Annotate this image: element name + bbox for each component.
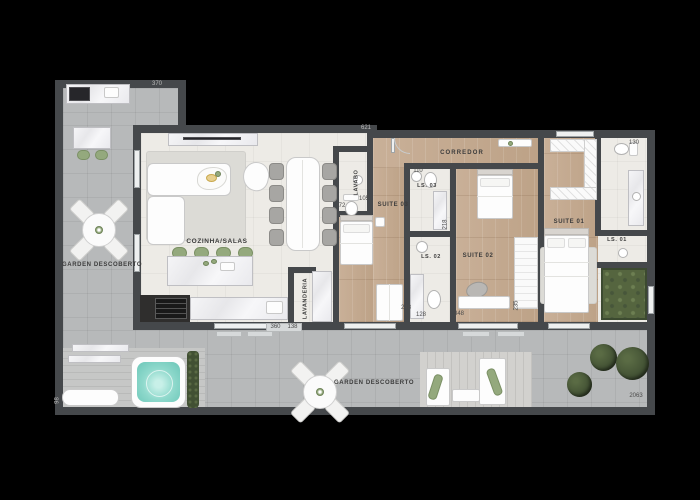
sliding-door bbox=[548, 323, 590, 329]
wall bbox=[595, 262, 647, 268]
terrace-bench bbox=[72, 344, 129, 352]
dining-chair bbox=[322, 185, 337, 202]
table-seam bbox=[302, 160, 303, 248]
shower-head bbox=[618, 248, 628, 258]
pillow bbox=[480, 178, 510, 187]
kitchen-sink bbox=[266, 301, 283, 314]
room-label-garden-bottom: GARDEN DESCOBERTO bbox=[334, 379, 414, 388]
dimension-terrace-left: 98 bbox=[55, 391, 62, 411]
floor-plan: GARDEN DESCOBERTO GARDEN DESCOBERTO COZI… bbox=[0, 0, 700, 500]
blanket-seam bbox=[477, 196, 513, 197]
toilet bbox=[427, 290, 441, 309]
kitchen-island bbox=[167, 256, 253, 286]
dimension-bath02-a: 248 bbox=[397, 305, 415, 312]
dimension-bbq-wall: 370 bbox=[146, 81, 168, 88]
dimension-suite03-side: 105 bbox=[355, 196, 373, 203]
plant bbox=[215, 171, 221, 177]
dimension-terrace-bottom-right: 2063 bbox=[621, 393, 651, 400]
dining-chair bbox=[269, 207, 284, 224]
blanket-seam bbox=[544, 262, 589, 263]
washbasin bbox=[632, 192, 641, 201]
jacuzzi-ring bbox=[146, 370, 173, 397]
wall bbox=[288, 267, 294, 322]
dimension-corridor-top: 621 bbox=[355, 125, 377, 132]
island-tray bbox=[220, 262, 235, 271]
dining-chair bbox=[322, 229, 337, 246]
dining-table bbox=[286, 157, 320, 251]
deck-table bbox=[452, 389, 480, 402]
sliding-door bbox=[458, 323, 518, 329]
garden-table-set-left bbox=[71, 202, 127, 258]
room-label-corridor: CORREDOR bbox=[434, 149, 490, 158]
pillow bbox=[547, 238, 565, 248]
door-step bbox=[216, 331, 242, 337]
wall bbox=[647, 130, 655, 415]
dimension-suite02-side: 235 bbox=[514, 296, 521, 316]
door-step bbox=[497, 331, 525, 337]
dimension-bath02-b: 128 bbox=[414, 312, 428, 319]
corridor-console bbox=[498, 139, 532, 147]
dimension-suite02-bottom: 348 bbox=[449, 311, 469, 318]
wall bbox=[55, 80, 63, 415]
window bbox=[556, 131, 594, 137]
dining-chair bbox=[269, 229, 284, 246]
terrace-side-table bbox=[73, 127, 111, 149]
laundry-counter bbox=[312, 271, 332, 322]
room-label-suite02: SUITE 02 bbox=[456, 252, 500, 261]
room-label-bath01: LS. 01 bbox=[603, 236, 631, 245]
bush bbox=[590, 344, 617, 371]
wall bbox=[178, 80, 186, 128]
dining-chair bbox=[269, 163, 284, 180]
plant bbox=[211, 259, 217, 264]
dimension-kitchen-a: 360 bbox=[267, 324, 284, 331]
plant bbox=[203, 261, 209, 266]
dimension-bath03-side: 218 bbox=[443, 215, 450, 235]
room-label-bath02: LS. 02 bbox=[417, 253, 445, 262]
dimension-bath01-top: 130 bbox=[624, 140, 644, 147]
wall bbox=[373, 130, 655, 138]
dimension-kitchen-b: 138 bbox=[285, 324, 300, 331]
terrace-bench bbox=[68, 355, 121, 363]
sliding-door bbox=[214, 323, 274, 329]
door-step bbox=[462, 331, 490, 337]
planter-garden bbox=[601, 268, 647, 320]
sun-lounger bbox=[62, 389, 119, 406]
wall bbox=[450, 163, 456, 322]
wall bbox=[133, 125, 377, 133]
table-centerpiece bbox=[95, 226, 103, 234]
hedge bbox=[187, 351, 199, 408]
pillow bbox=[568, 238, 586, 248]
room-label-laundry: LAVANDERIA bbox=[302, 277, 311, 321]
room-label-kitchen-living: COZINHA/SALAS bbox=[177, 237, 257, 246]
table-centerpiece bbox=[316, 388, 324, 396]
plant bbox=[508, 141, 513, 146]
bbq-grill bbox=[69, 87, 90, 101]
room-label-garden-left: GARDEN DESCOBERTO bbox=[62, 261, 142, 270]
bush bbox=[567, 372, 592, 397]
garden-table-set-bottom bbox=[292, 364, 348, 420]
terrace-stool bbox=[95, 150, 108, 160]
dimension-bath03-top: 110 bbox=[408, 168, 428, 175]
bush bbox=[616, 347, 649, 380]
window bbox=[344, 323, 396, 329]
oven bbox=[155, 298, 187, 319]
dining-chair bbox=[322, 163, 337, 180]
tv bbox=[183, 137, 241, 140]
terrace-stool bbox=[77, 150, 90, 160]
closet bbox=[550, 187, 597, 200]
blanket-seam bbox=[544, 276, 589, 277]
room-label-suite03: SUITE 03 bbox=[371, 201, 415, 210]
washbasin bbox=[416, 241, 428, 253]
desk bbox=[458, 296, 510, 309]
window bbox=[648, 286, 654, 314]
dining-chair bbox=[269, 185, 284, 202]
window bbox=[134, 150, 140, 188]
wardrobe-seam bbox=[389, 284, 390, 321]
bbq-sink bbox=[104, 87, 119, 98]
room-label-bath03: LS. 03 bbox=[413, 182, 441, 191]
pillow bbox=[343, 224, 370, 233]
dimension-powder-door: 72 bbox=[335, 203, 349, 210]
room-label-suite01: SUITE 01 bbox=[547, 218, 591, 227]
nightstand bbox=[375, 217, 385, 227]
bed-headboard bbox=[544, 228, 589, 235]
wall bbox=[55, 407, 655, 415]
blanket-seam bbox=[340, 243, 373, 244]
